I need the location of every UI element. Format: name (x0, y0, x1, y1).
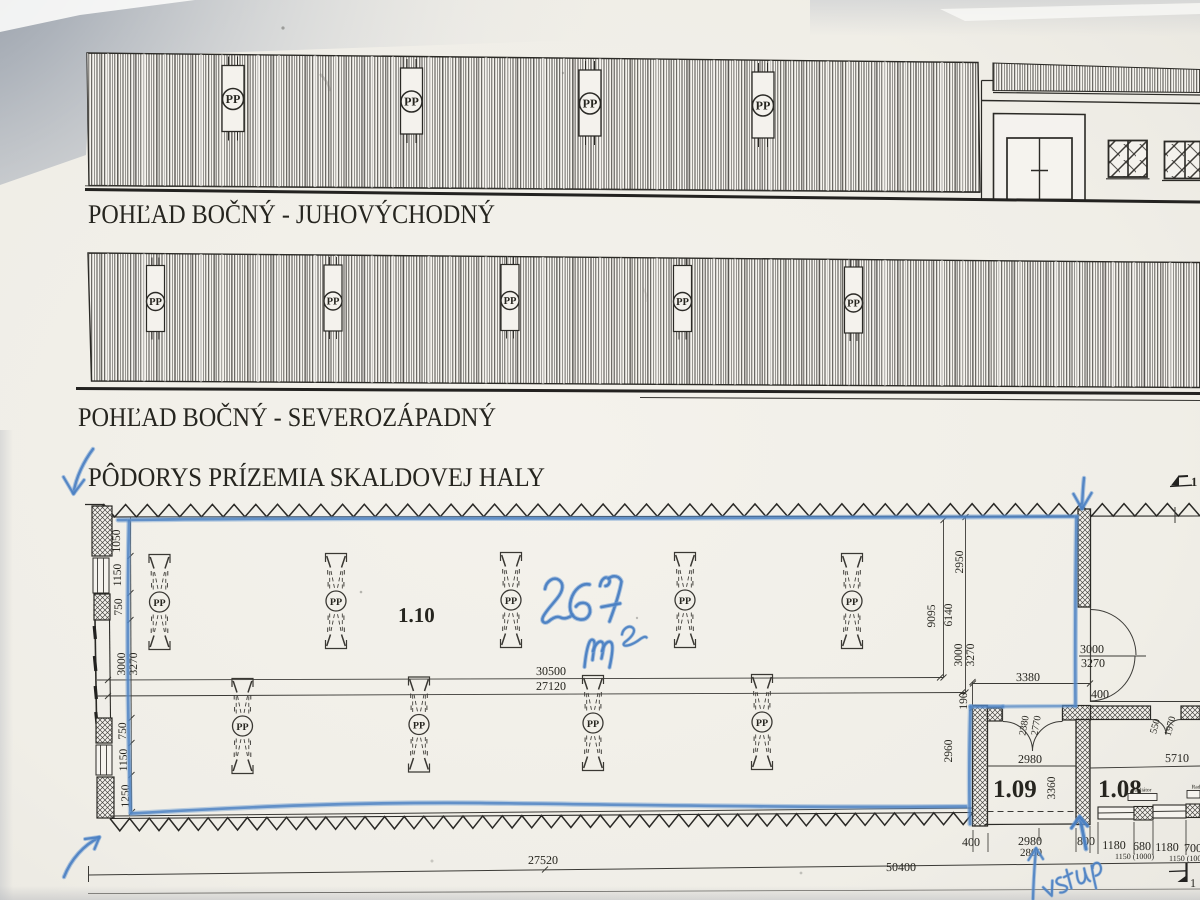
svg-text:PP: PP (226, 92, 241, 106)
svg-text:1150: 1150 (112, 563, 124, 586)
svg-text:3270: 3270 (965, 643, 977, 666)
svg-text:680: 680 (1133, 839, 1151, 853)
svg-text:400: 400 (1091, 687, 1109, 701)
svg-text:750: 750 (113, 598, 125, 616)
svg-text:400: 400 (962, 835, 980, 849)
svg-text:PP: PP (404, 95, 419, 109)
svg-text:PP: PP (327, 297, 340, 308)
svg-text:2980: 2980 (1018, 752, 1042, 766)
svg-text:9095: 9095 (926, 604, 938, 627)
svg-text:PP: PP (236, 722, 248, 733)
svg-text:PP: PP (153, 598, 165, 609)
svg-text:PP: PP (504, 296, 517, 307)
svg-text:2980: 2980 (1018, 834, 1042, 848)
svg-text:PP: PP (756, 718, 768, 729)
svg-text:PP: PP (505, 596, 517, 607)
svg-text:3000: 3000 (1080, 642, 1104, 656)
svg-text:POHĽAD BOČNÝ - JUHOVÝCHODNÝ: POHĽAD BOČNÝ - JUHOVÝCHODNÝ (88, 199, 495, 229)
svg-text:2960: 2960 (943, 739, 955, 762)
svg-text:PP: PP (756, 99, 771, 113)
svg-text:PP: PP (679, 596, 691, 607)
svg-text:1.09: 1.09 (993, 776, 1037, 803)
svg-text:PP: PP (846, 597, 858, 608)
svg-text:3360: 3360 (1046, 776, 1058, 799)
svg-text:1: 1 (1190, 876, 1196, 890)
svg-text:PÔDORYS PRÍZEMIA SKALDOVEJ HA: PÔDORYS PRÍZEMIA SKALDOVEJ HALY (88, 462, 545, 492)
svg-text:1180: 1180 (1102, 838, 1126, 852)
svg-text:POHĽAD BOČNÝ - SEVEROZÁPADNÝ: POHĽAD BOČNÝ - SEVEROZÁPADNÝ (78, 402, 496, 432)
svg-text:3000: 3000 (953, 643, 965, 666)
svg-text:PP: PP (587, 719, 599, 730)
svg-text:1.10: 1.10 (398, 603, 435, 627)
svg-text:50400: 50400 (886, 860, 916, 874)
svg-text:PP: PP (847, 299, 860, 310)
svg-text:3270: 3270 (1081, 656, 1105, 670)
svg-text:1150 (1000): 1150 (1000) (1115, 852, 1154, 861)
svg-text:2950: 2950 (954, 550, 966, 573)
svg-text:5710: 5710 (1165, 751, 1189, 765)
svg-text:30500: 30500 (536, 664, 566, 678)
svg-text:1150 (1000): 1150 (1000) (1169, 854, 1200, 863)
svg-text:27120: 27120 (536, 679, 566, 693)
svg-text:3380: 3380 (1016, 670, 1040, 684)
svg-text:PP: PP (583, 97, 598, 111)
svg-text:27520: 27520 (528, 853, 558, 867)
svg-text:Rad: Rad (1192, 785, 1200, 791)
svg-text:6140: 6140 (943, 603, 955, 626)
svg-text:PP: PP (676, 297, 689, 308)
svg-text:PP: PP (330, 597, 342, 608)
svg-text:PP: PP (149, 297, 162, 308)
svg-text:1180: 1180 (1155, 840, 1179, 854)
svg-text:1050: 1050 (111, 529, 123, 552)
svg-text:PP: PP (413, 721, 425, 732)
svg-text:Radiátor: Radiátor (1133, 788, 1152, 794)
svg-text:1: 1 (1191, 475, 1197, 489)
